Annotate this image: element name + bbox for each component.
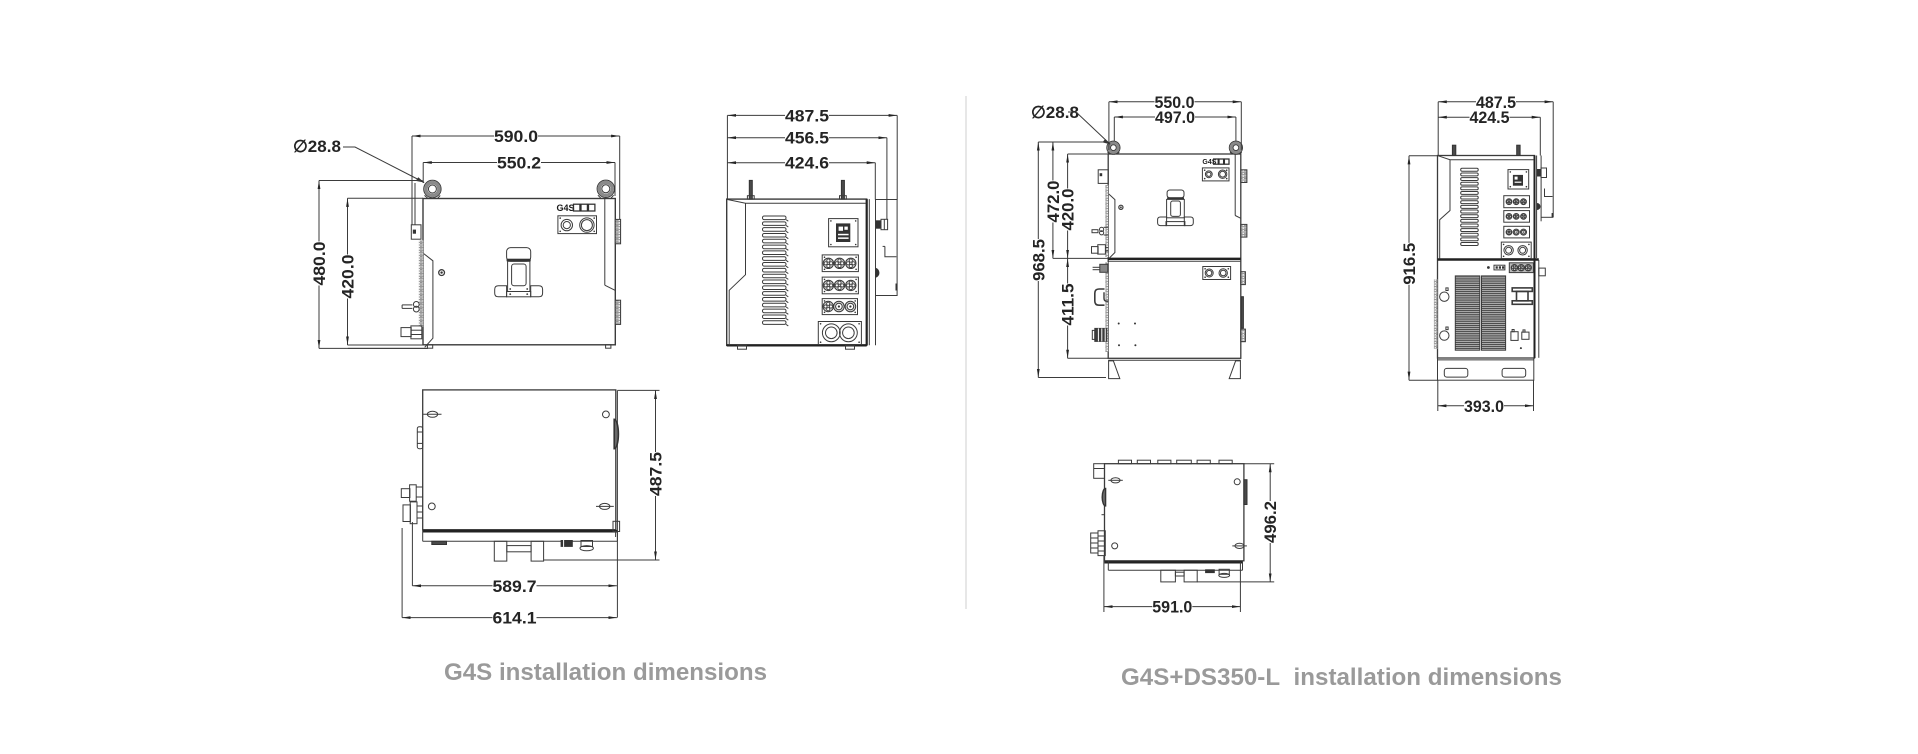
- svg-text:411.5: 411.5: [1059, 284, 1078, 326]
- svg-text:G4S: G4S: [1202, 159, 1216, 166]
- svg-text:497.0: 497.0: [1155, 108, 1195, 127]
- svg-text:589.7: 589.7: [493, 577, 537, 596]
- svg-text:G4S: G4S: [557, 203, 575, 213]
- svg-text:424.6: 424.6: [785, 154, 829, 173]
- svg-text:456.5: 456.5: [785, 129, 829, 148]
- svg-text:487.5: 487.5: [647, 452, 666, 496]
- svg-text:591.0: 591.0: [1152, 598, 1192, 617]
- svg-text:480.0: 480.0: [310, 242, 329, 286]
- svg-text:590.0: 590.0: [494, 127, 538, 146]
- svg-text:614.1: 614.1: [493, 609, 537, 628]
- svg-text:G4S+DS350-L installation dime: G4S+DS350-L installation dimensions: [1121, 664, 1562, 691]
- svg-text:420.0: 420.0: [339, 255, 358, 299]
- svg-text:496.2: 496.2: [1261, 501, 1280, 543]
- svg-text:420.0: 420.0: [1059, 189, 1078, 231]
- svg-text:487.5: 487.5: [785, 106, 829, 125]
- svg-text:968.5: 968.5: [1029, 239, 1048, 281]
- svg-text:∅28.8: ∅28.8: [293, 137, 341, 156]
- svg-text:G4S installation dimensions: G4S installation dimensions: [444, 659, 767, 686]
- svg-text:393.0: 393.0: [1464, 397, 1504, 416]
- svg-text:424.5: 424.5: [1470, 108, 1510, 127]
- svg-text:916.5: 916.5: [1400, 243, 1419, 285]
- svg-text:550.2: 550.2: [497, 154, 541, 173]
